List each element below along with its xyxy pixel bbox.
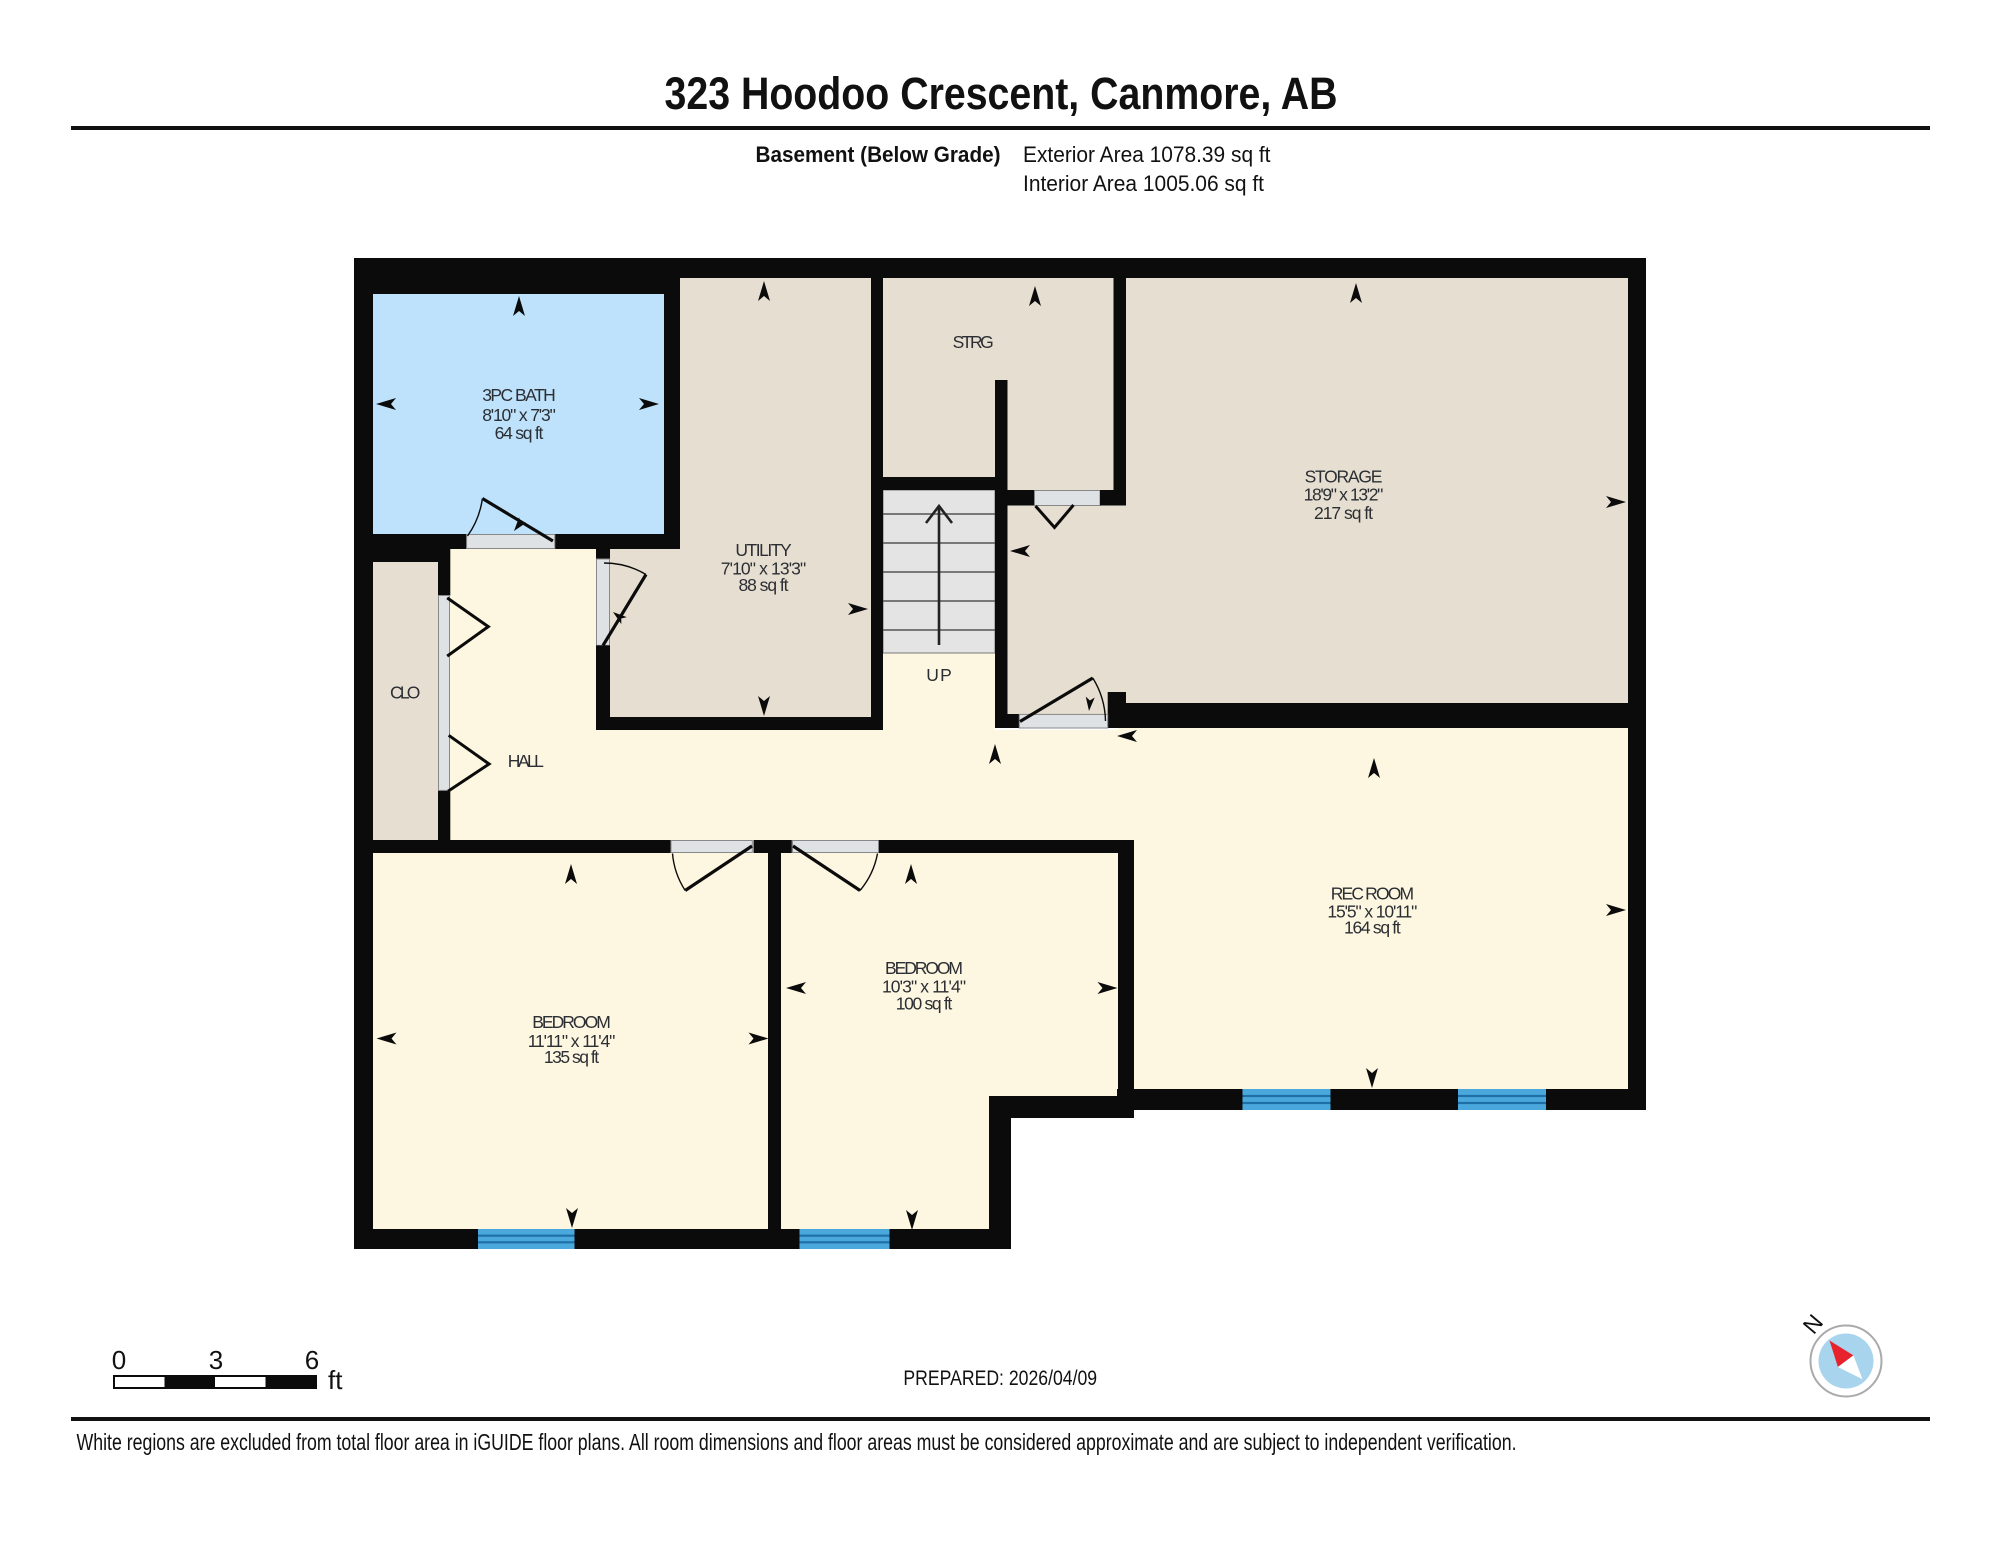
svg-text:White regions are excluded fro: White regions are excluded from total fl… bbox=[77, 1429, 1517, 1455]
svg-text:Interior Area 1005.06 sq ft: Interior Area 1005.06 sq ft bbox=[1023, 171, 1265, 196]
svg-text:64 sq ft: 64 sq ft bbox=[495, 423, 544, 443]
svg-text:STRG: STRG bbox=[953, 332, 994, 352]
svg-text:135 sq ft: 135 sq ft bbox=[544, 1047, 599, 1067]
svg-text:18'9" x 13'2": 18'9" x 13'2" bbox=[1304, 484, 1384, 504]
svg-text:100 sq ft: 100 sq ft bbox=[896, 993, 953, 1013]
svg-text:323 Hoodoo Crescent, Canmore,: 323 Hoodoo Crescent, Canmore, AB bbox=[665, 68, 1338, 119]
svg-text:6: 6 bbox=[305, 1345, 319, 1375]
svg-text:BEDROOM: BEDROOM bbox=[885, 958, 963, 978]
svg-text:217 sq ft: 217 sq ft bbox=[1314, 503, 1373, 523]
svg-text:UTILITY: UTILITY bbox=[735, 540, 792, 560]
svg-text:CLO: CLO bbox=[390, 682, 420, 702]
svg-text:164 sq ft: 164 sq ft bbox=[1344, 917, 1401, 937]
svg-text:3PC BATH: 3PC BATH bbox=[482, 385, 556, 405]
svg-text:PREPARED: 2026/04/09: PREPARED: 2026/04/09 bbox=[903, 1366, 1097, 1390]
svg-text:HALL: HALL bbox=[508, 751, 544, 771]
svg-text:8'10" x 7'3": 8'10" x 7'3" bbox=[482, 405, 556, 425]
svg-text:Exterior Area 1078.39 sq ft: Exterior Area 1078.39 sq ft bbox=[1023, 142, 1271, 167]
svg-text:ft: ft bbox=[328, 1365, 343, 1395]
svg-text:3: 3 bbox=[209, 1345, 223, 1375]
svg-text:BEDROOM: BEDROOM bbox=[532, 1012, 611, 1032]
svg-text:Basement (Below Grade): Basement (Below Grade) bbox=[756, 142, 1001, 167]
svg-text:0: 0 bbox=[112, 1345, 126, 1375]
svg-text:88 sq ft: 88 sq ft bbox=[739, 575, 789, 595]
